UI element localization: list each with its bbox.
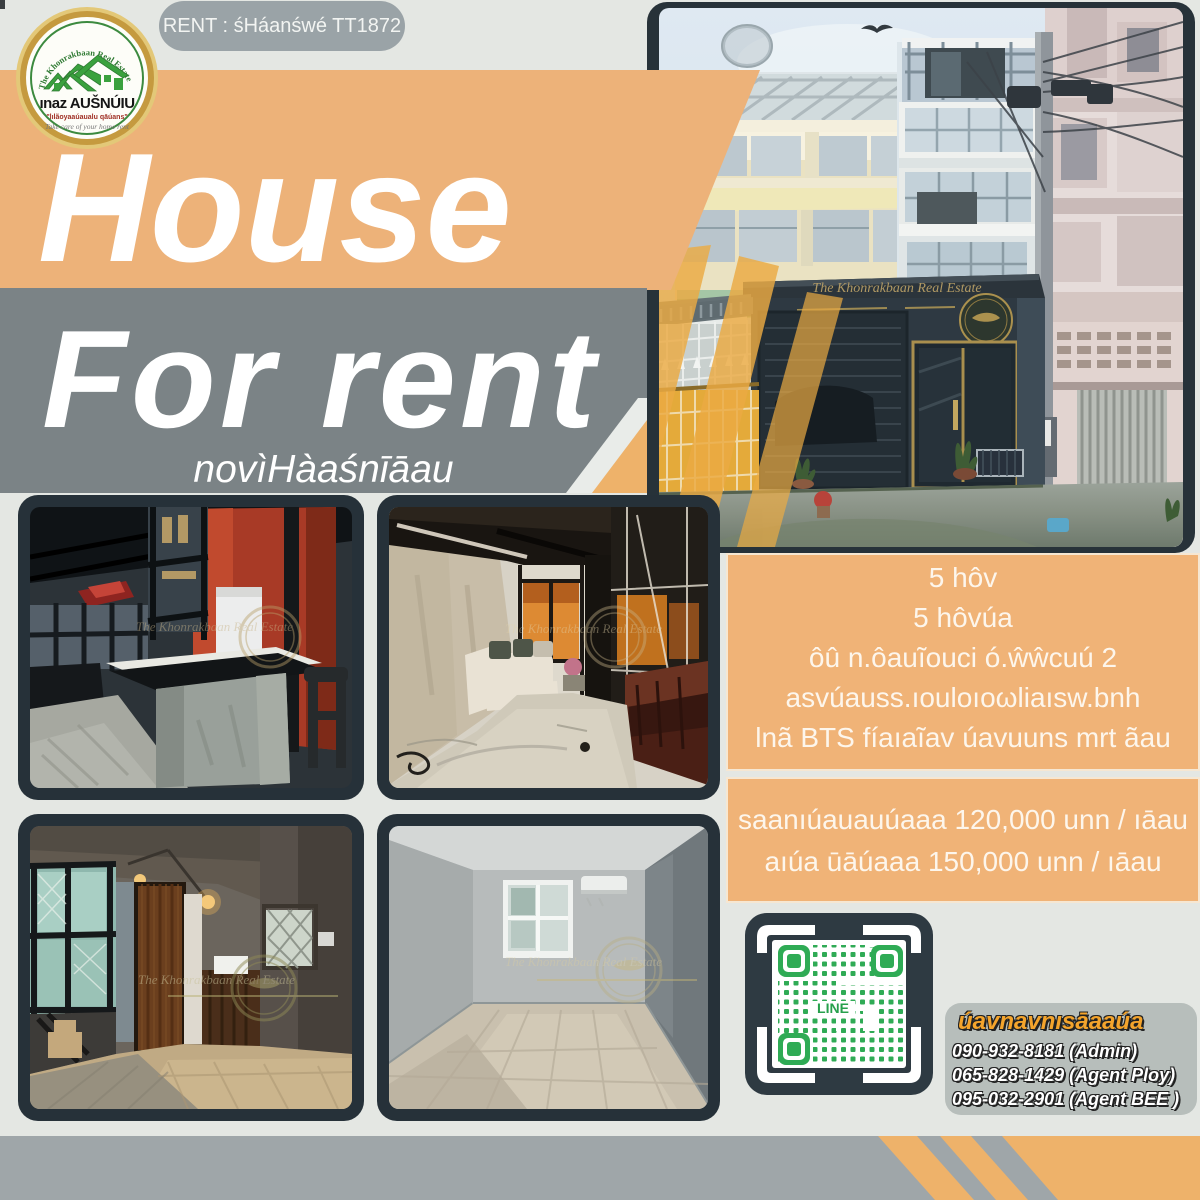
svg-text:ınaz AUŠNÚIU: ınaz AUŠNÚIU <box>39 94 134 112</box>
svg-text:Take care of your home rent: Take care of your home rent <box>45 122 130 131</box>
svg-text:The Khonrakbaan Real Estate: The Khonrakbaan Real Estate <box>505 621 662 636</box>
svg-text:The Khonrakbaan Real Estate: The Khonrakbaan Real Estate <box>136 619 293 634</box>
svg-text:"lılãoyaaúaualu qāúans": "lılãoyaaúaualu qāúans" <box>46 114 127 121</box>
svg-text:The Khonrakbaan Real Estate: The Khonrakbaan Real Estate <box>138 972 295 987</box>
svg-text:LINE: LINE <box>817 1000 849 1016</box>
svg-text:The Khonrakbaan Real Estate: The Khonrakbaan Real Estate <box>505 954 662 969</box>
